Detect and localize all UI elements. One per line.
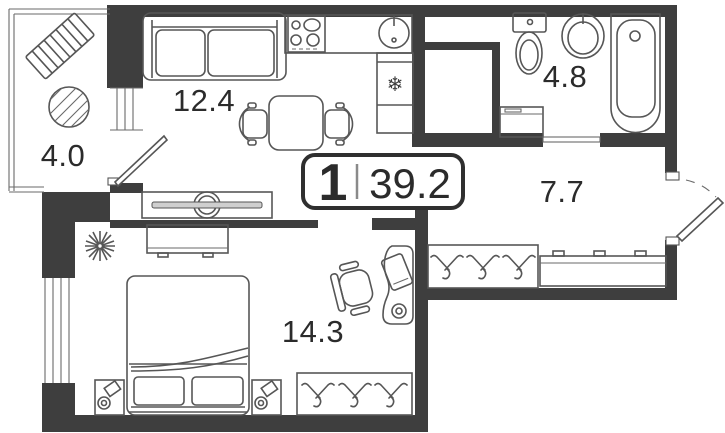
balcony: [25, 13, 112, 150]
kitchen-balcony-window: [110, 88, 143, 130]
hanger-icon: [467, 256, 499, 279]
wall-bottom: [42, 415, 428, 432]
wall-bedroom-top-stub: [372, 218, 415, 230]
hanger-icon: [302, 384, 334, 407]
wall-shaft-top: [425, 42, 500, 50]
stove: [288, 16, 325, 52]
room-label-bedroom: 14.3: [282, 314, 344, 349]
door-swing-arc: [686, 180, 716, 197]
tv-stand: [147, 225, 228, 257]
hanger-icon: [375, 384, 407, 407]
round-table-icon: [32, 52, 112, 150]
bathroom-door-threshold: [543, 137, 600, 142]
floor-plan-canvas: ❄: [0, 0, 725, 433]
dining-chair-right: [325, 103, 353, 145]
plant-icon: [85, 231, 115, 261]
wall-shaft-right: [492, 50, 500, 135]
shoe-bench: [540, 251, 666, 286]
drying-rack-icon: [25, 13, 94, 79]
hallway-wardrobe: [428, 245, 538, 288]
room-label-bathroom: 4.8: [543, 59, 588, 94]
badge-rooms-count: 1: [319, 154, 348, 212]
room-label-hallway: 7.7: [540, 174, 585, 209]
wall-bathroom-bottom-left: [412, 133, 543, 147]
hanger-icon: [431, 256, 463, 279]
toilet: [513, 13, 546, 74]
wall-hallway-bottom: [415, 288, 677, 300]
console-with-mirror: [142, 192, 272, 218]
mirror-shelf: [152, 202, 262, 208]
wall-balcony-kitchen: [107, 5, 143, 88]
bedroom-wardrobe: [297, 373, 412, 415]
nightstand-left: [95, 380, 124, 415]
dining-chair-left: [239, 103, 267, 145]
bedroom-window: [45, 278, 69, 383]
room-label-kitchen: 12.4: [173, 83, 235, 118]
wall-left-upper: [42, 222, 75, 278]
laptop-icon: [381, 253, 413, 291]
pillow: [192, 377, 243, 405]
wall-bedroom-right: [415, 210, 428, 432]
pillow: [134, 377, 184, 405]
balcony-door: [108, 136, 167, 186]
wall-bedroom-top: [110, 220, 318, 228]
hanger-icon: [339, 384, 371, 407]
desk: [381, 246, 413, 324]
room-label-balcony: 4.0: [41, 138, 86, 173]
snowflake-icon: ❄: [387, 74, 404, 96]
fridge: ❄: [387, 74, 404, 96]
wall-left-lower: [42, 383, 75, 432]
entrance-door: [666, 172, 723, 245]
hanger-icon: [503, 256, 535, 279]
wall-right-upper: [665, 5, 677, 173]
kitchen-sink: [379, 16, 409, 48]
wall-kitchen-right: [412, 5, 425, 147]
sofa: [143, 13, 286, 80]
bathtub: [611, 14, 660, 133]
bed: [127, 276, 249, 415]
dining-table: [269, 96, 323, 150]
washing-machine: [500, 107, 543, 137]
nightstand-right: [252, 380, 281, 415]
floor-plan: ❄: [0, 0, 725, 433]
office-chair: [328, 259, 376, 318]
wall-bedroom-topleft: [42, 192, 110, 222]
bedroom: [85, 225, 413, 415]
door-leaf: [677, 198, 723, 241]
bathroom-sink: [562, 13, 604, 58]
badge-total-area: 39.2: [369, 160, 451, 207]
cup-icon: [392, 304, 406, 318]
area-badge: 1 39.2: [303, 154, 463, 212]
wall-bathroom-bottom-right: [600, 133, 665, 147]
